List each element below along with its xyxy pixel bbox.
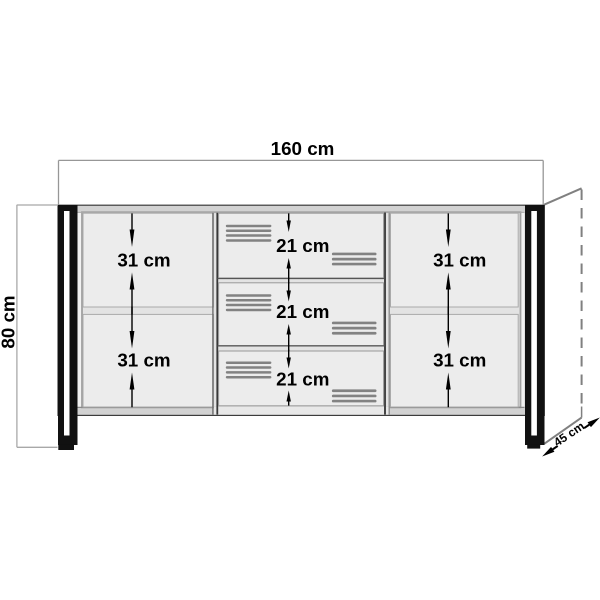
svg-text:31 cm: 31 cm (117, 350, 170, 371)
svg-text:31 cm: 31 cm (433, 249, 486, 270)
svg-text:31 cm: 31 cm (433, 350, 486, 371)
svg-text:160 cm: 160 cm (271, 138, 335, 159)
svg-text:31 cm: 31 cm (117, 249, 170, 270)
svg-text:21 cm: 21 cm (276, 235, 329, 256)
svg-text:80 cm: 80 cm (0, 295, 18, 348)
svg-text:21 cm: 21 cm (276, 301, 329, 322)
svg-text:21 cm: 21 cm (276, 369, 329, 390)
